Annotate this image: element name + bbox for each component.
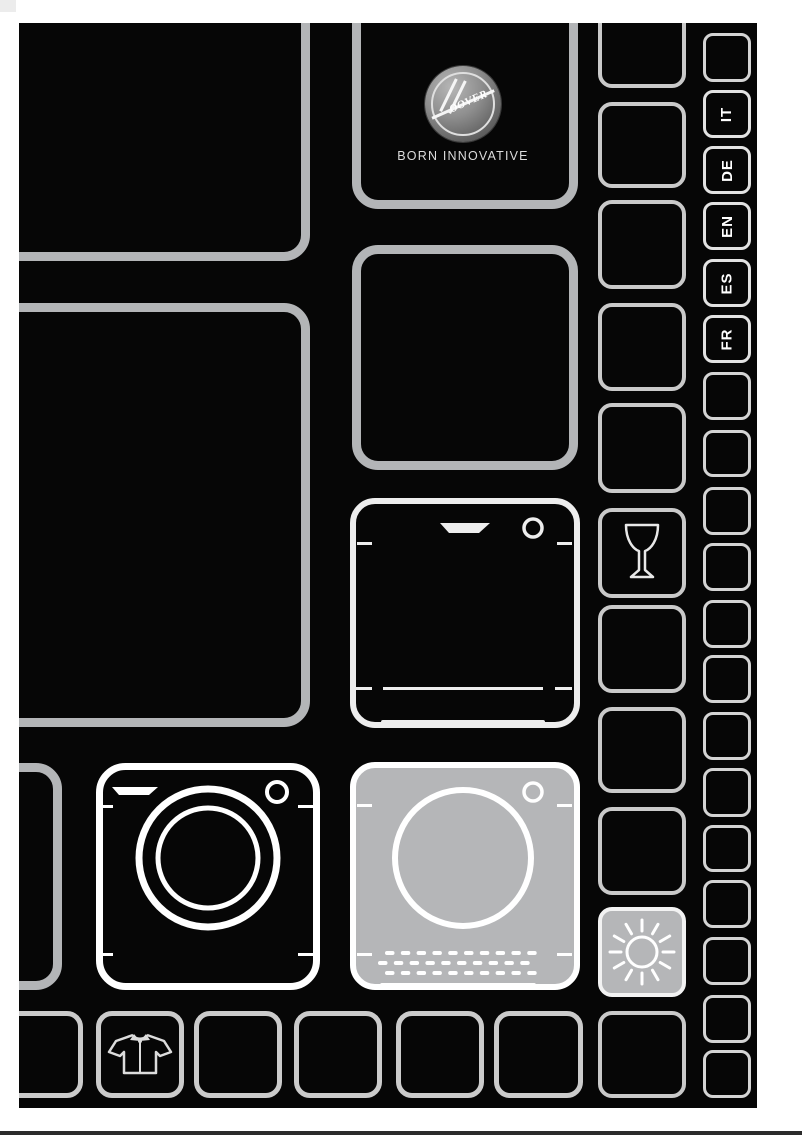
grid-cell-bottom-5 xyxy=(396,1011,484,1098)
screen: OOVER BORN INNOVATIVE xyxy=(0,0,802,1136)
washer-knob xyxy=(267,782,287,802)
tumble-dryer-icon-highlighted xyxy=(350,762,580,990)
brand-tagline: BORN INNOVATIVE xyxy=(363,149,563,163)
grid-cell-small-14 xyxy=(703,768,751,817)
grid-cell-left-2 xyxy=(19,303,310,727)
grid-cell-mid-1 xyxy=(598,23,686,88)
washer-door-inner xyxy=(158,808,258,908)
grid-cell-small-11 xyxy=(703,600,751,648)
grid-cell-center-2 xyxy=(352,245,578,470)
lang-label-de: DE xyxy=(719,159,736,182)
grid-cell-small-19 xyxy=(703,1050,751,1098)
dryer-plinth xyxy=(380,983,536,990)
grid-cell-small-13 xyxy=(703,712,751,760)
washing-machine-icon xyxy=(96,763,320,990)
wine-glass-cell xyxy=(598,508,686,598)
grid-cell-mid-9 xyxy=(598,807,686,895)
grid-cell-bottom-4 xyxy=(294,1011,382,1098)
grid-cell-small-12 xyxy=(703,655,751,703)
grid-cell-small-16 xyxy=(703,880,751,928)
grid-cell-small-1 xyxy=(703,33,751,82)
grid-cell-left-1 xyxy=(19,23,310,261)
grid-cell-small-8 xyxy=(703,430,751,477)
grid-cell-small-18 xyxy=(703,995,751,1043)
lang-label-es: ES xyxy=(718,272,735,294)
wine-glass-icon xyxy=(619,521,665,585)
sun-icon xyxy=(607,917,677,987)
grid-cell-small-7 xyxy=(703,372,751,420)
grid-cell-small-10 xyxy=(703,543,751,591)
viewer-corner-artifact xyxy=(0,0,16,12)
lang-tab-de: DE xyxy=(703,146,751,194)
dishwasher-dispenser xyxy=(440,523,490,533)
dishwasher-knob xyxy=(524,519,542,537)
hoover-logo-icon: OOVER xyxy=(425,66,501,142)
grid-cell-bottom-6 xyxy=(494,1011,583,1098)
grid-cell-left-washer-row-stub xyxy=(19,763,62,990)
shirt-icon xyxy=(104,1028,176,1080)
lang-label-en: EN xyxy=(719,215,736,238)
lang-tab-es: ES xyxy=(703,259,751,307)
grid-cell-mid-11 xyxy=(598,1011,686,1098)
grid-cell-mid-8 xyxy=(598,707,686,793)
sun-cell-highlighted xyxy=(598,907,686,997)
lang-label-fr: FR xyxy=(719,328,736,350)
lang-tab-en: EN xyxy=(703,202,751,250)
grid-cell-small-15 xyxy=(703,825,751,872)
grid-cell-bottom-row-stub xyxy=(19,1011,83,1098)
washer-plinth xyxy=(124,983,292,990)
dishwasher-plinth xyxy=(381,720,545,728)
grid-cell-mid-7 xyxy=(598,605,686,693)
grid-cell-mid-2 xyxy=(598,102,686,188)
lang-label-it: IT xyxy=(719,106,736,121)
window-bottom-edge xyxy=(0,1131,802,1135)
washer-drawer xyxy=(112,787,158,795)
dishwasher-icon xyxy=(350,498,580,728)
grid-cell-mid-3 xyxy=(598,200,686,289)
lang-tab-it: IT xyxy=(703,90,751,138)
shirt-cell xyxy=(96,1011,184,1098)
grid-cell-small-9 xyxy=(703,487,751,535)
lang-tab-fr: FR xyxy=(703,315,751,363)
grid-cell-small-17 xyxy=(703,937,751,985)
grid-cell-mid-4 xyxy=(598,303,686,391)
grid-cell-mid-5 xyxy=(598,403,686,493)
grid-cell-bottom-3 xyxy=(194,1011,282,1098)
manual-cover-page: OOVER BORN INNOVATIVE xyxy=(19,23,757,1108)
